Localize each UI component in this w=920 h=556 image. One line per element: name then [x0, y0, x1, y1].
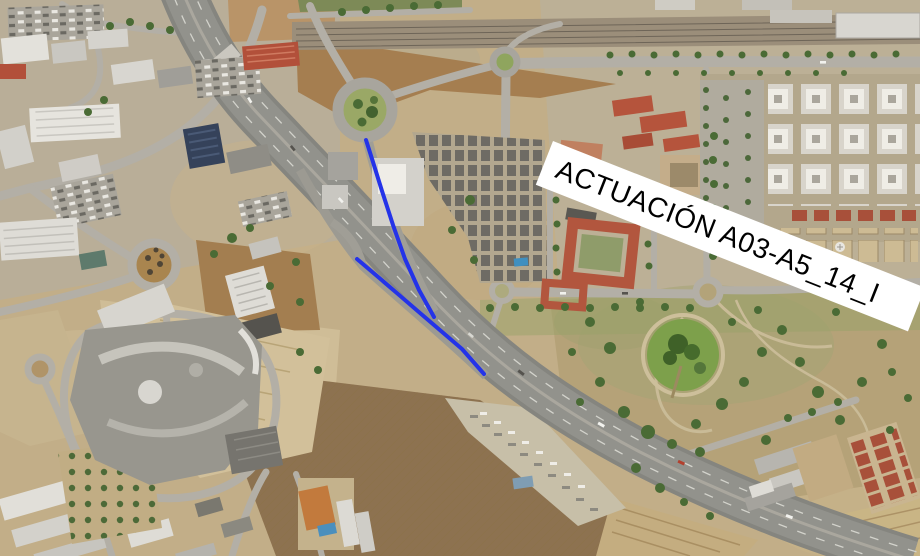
shopping-centre: [70, 315, 283, 485]
station-building: [836, 13, 920, 38]
roundabout-north: [493, 50, 517, 74]
aerial-map-figure: ACTUACIÓN A03-A5_14_I: [0, 0, 920, 556]
roundabout-main: [338, 83, 392, 137]
roundabout-southwest: [28, 357, 52, 381]
roundabout-park: [696, 280, 720, 304]
solar-roof-building: [183, 123, 225, 169]
large-warehouse: [29, 104, 121, 143]
roundabout-west: [132, 243, 176, 287]
park-pond: [643, 315, 723, 398]
station-platform: [770, 10, 832, 23]
roundabout-avenue: [492, 281, 512, 301]
red-roof-warehouse: [242, 42, 300, 71]
